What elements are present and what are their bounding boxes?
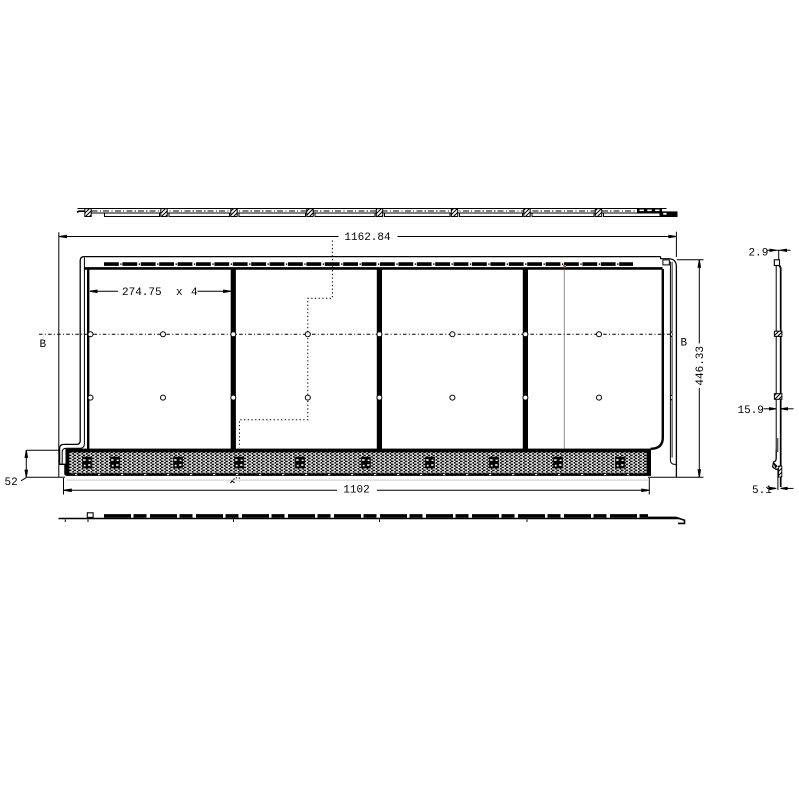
svg-text:1102: 1102	[343, 485, 369, 497]
svg-text:5.1: 5.1	[752, 485, 772, 497]
svg-text:2.9: 2.9	[749, 247, 769, 259]
svg-text:B: B	[681, 337, 688, 349]
svg-text:4: 4	[191, 287, 198, 299]
svg-text:B: B	[40, 339, 47, 351]
svg-text:15.9: 15.9	[738, 405, 764, 417]
svg-text:52: 52	[5, 477, 18, 489]
svg-text:274.75: 274.75	[122, 287, 162, 299]
svg-text:1162.84: 1162.84	[344, 232, 391, 244]
svg-text:446.33: 446.33	[695, 346, 707, 386]
svg-text:x: x	[176, 287, 183, 299]
